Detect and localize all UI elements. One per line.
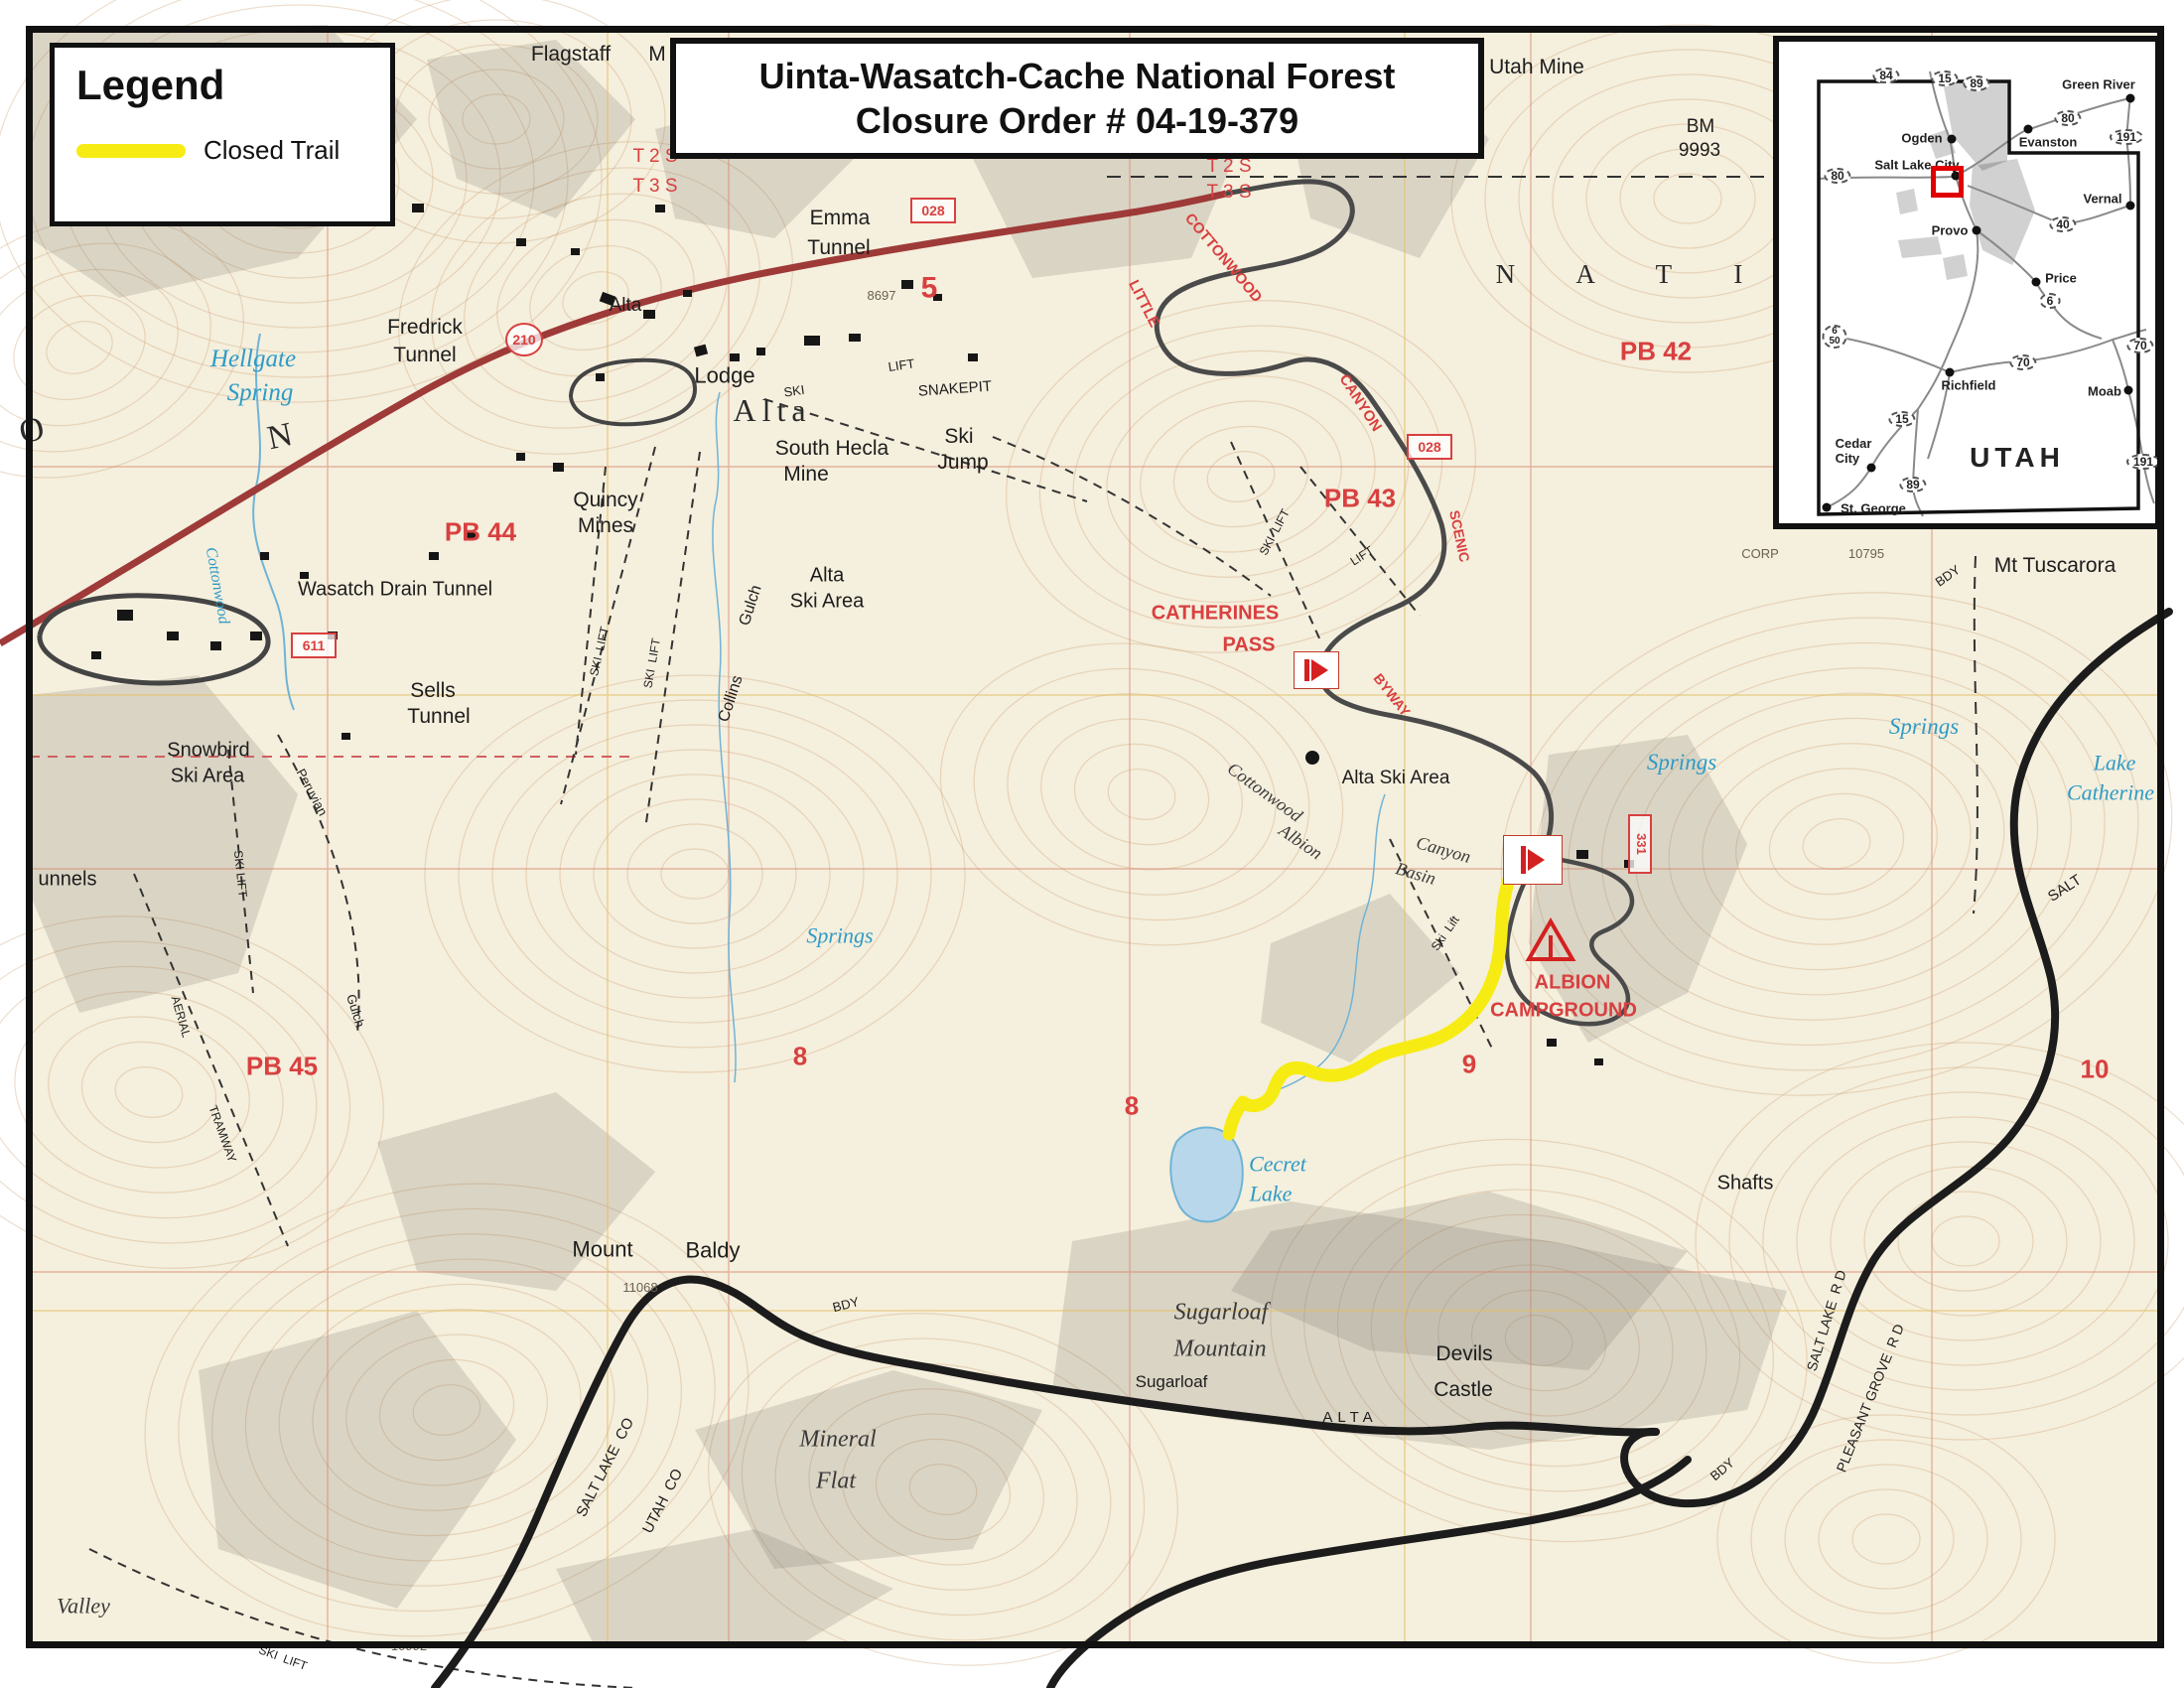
map-title-line2: Closure Order # 04-19-379 — [856, 98, 1298, 143]
legend-item-closed-trail: Closed Trail — [76, 135, 390, 166]
inset-city-label: Cedar City — [1836, 436, 1872, 466]
inset-city-dot — [2124, 386, 2133, 395]
inset-city-dot — [1946, 368, 1955, 377]
inset-city-label: Price — [2045, 271, 2077, 286]
inset-route-shield: 191 — [2110, 129, 2143, 145]
inset-city-dot — [1948, 135, 1957, 144]
ranger-district-boundary — [435, 612, 2169, 1688]
inset-city-label: Green River — [2062, 77, 2135, 92]
inset-route-shield: 6 50 — [1822, 325, 1846, 349]
albion-basin-road — [1157, 182, 1551, 856]
inset-city-label: Moab — [2088, 384, 2121, 399]
inset-city-dot — [2126, 94, 2135, 103]
closed-trail-swatch — [76, 144, 186, 158]
inset-city-dot — [1973, 226, 1981, 235]
inset-route-shield: 191 — [2126, 454, 2160, 470]
cecret-lake — [1170, 1127, 1243, 1221]
inset-city-dot — [2024, 125, 2033, 134]
inset-forest-areas — [1896, 81, 2035, 280]
map-page: FlagstaffMUtah MineBM9993T 2 ST 3 ST 2 S… — [0, 0, 2184, 1688]
dashed-section-line — [1974, 556, 1978, 914]
utah-inset-map: OgdenSalt Lake CityProvoEvanstonGreen Ri… — [1773, 36, 2161, 529]
inset-state-name: UTAH — [1970, 442, 2065, 474]
streams — [253, 334, 1385, 1092]
inset-city-label: Evanston — [2019, 135, 2078, 150]
title-box: Uinta-Wasatch-Cache National Forest Clos… — [670, 38, 1484, 159]
legend-panel: Legend Closed Trail — [50, 43, 395, 226]
legend-item-label: Closed Trail — [204, 135, 340, 166]
alta-loop-road — [571, 360, 695, 425]
inset-city-label: Vernal — [2083, 192, 2121, 207]
inset-city-dot — [2032, 278, 2041, 287]
inset-city-label: Provo — [1932, 223, 1969, 238]
map-title-line1: Uinta-Wasatch-Cache National Forest — [759, 54, 1396, 98]
inset-city-label: St. George — [1841, 501, 1906, 516]
inset-city-dot — [1823, 503, 1832, 512]
legend-title: Legend — [76, 62, 390, 109]
inset-city-label: Ogden — [1901, 131, 1942, 146]
snowbird-loop-road — [40, 596, 268, 683]
inset-city-label: Richfield — [1942, 378, 1996, 393]
inset-city-dot — [2126, 202, 2135, 211]
inset-route-shield: 6 — [2040, 293, 2061, 309]
inset-location-marker — [1931, 166, 1964, 198]
